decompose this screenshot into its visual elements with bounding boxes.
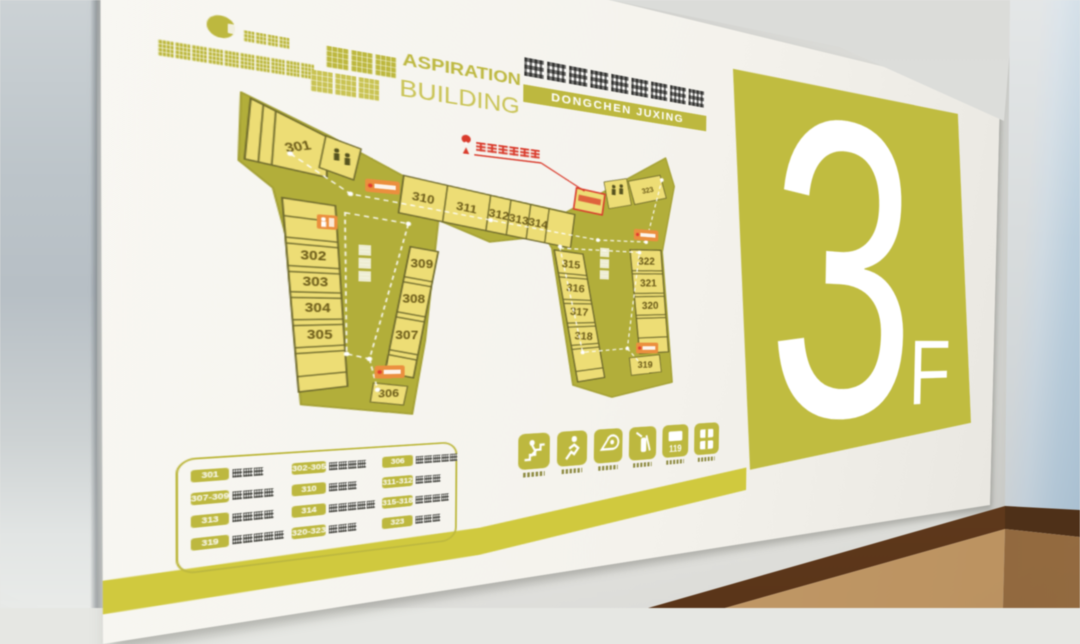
- svg-text:319: 319: [638, 360, 653, 370]
- svg-text:303: 303: [303, 274, 329, 289]
- svg-text:309: 309: [410, 257, 433, 271]
- svg-text:3: 3: [764, 12, 920, 514]
- svg-text:304: 304: [305, 301, 331, 315]
- svg-text:306: 306: [378, 388, 399, 401]
- svg-text:308: 308: [402, 292, 425, 306]
- svg-text:F: F: [908, 321, 952, 425]
- svg-text:301: 301: [283, 138, 313, 155]
- svg-text:302: 302: [300, 248, 326, 263]
- svg-text:322: 322: [638, 255, 655, 267]
- svg-text:320: 320: [642, 300, 659, 311]
- svg-text:119: 119: [669, 443, 682, 454]
- svg-text:321: 321: [640, 277, 657, 288]
- svg-text:307: 307: [395, 328, 418, 341]
- svg-text:317: 317: [570, 305, 589, 318]
- svg-text:318: 318: [574, 330, 593, 343]
- svg-text:305: 305: [307, 328, 333, 342]
